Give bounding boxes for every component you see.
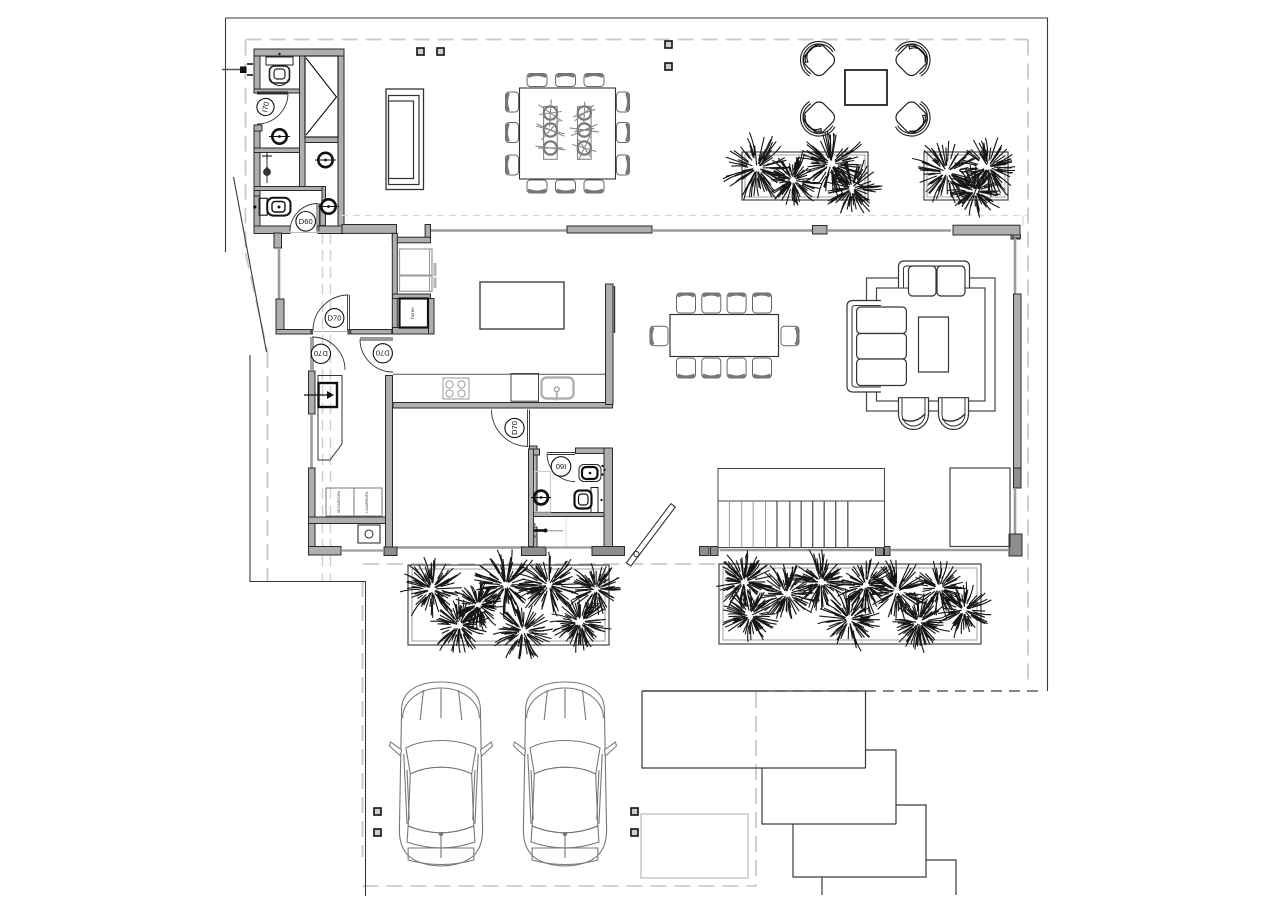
svg-text:D70: D70 — [328, 314, 342, 323]
svg-text:D60: D60 — [299, 217, 313, 226]
svg-text:SECARROPA: SECARROPA — [337, 490, 341, 513]
svg-text:LAVARROPA: LAVARROPA — [365, 491, 369, 513]
svg-text:D70: D70 — [314, 349, 328, 358]
svg-text:horno: horno — [410, 307, 415, 319]
svg-text:I60: I60 — [556, 462, 567, 471]
svg-text:D70: D70 — [376, 349, 390, 358]
svg-text:D70: D70 — [510, 421, 519, 435]
